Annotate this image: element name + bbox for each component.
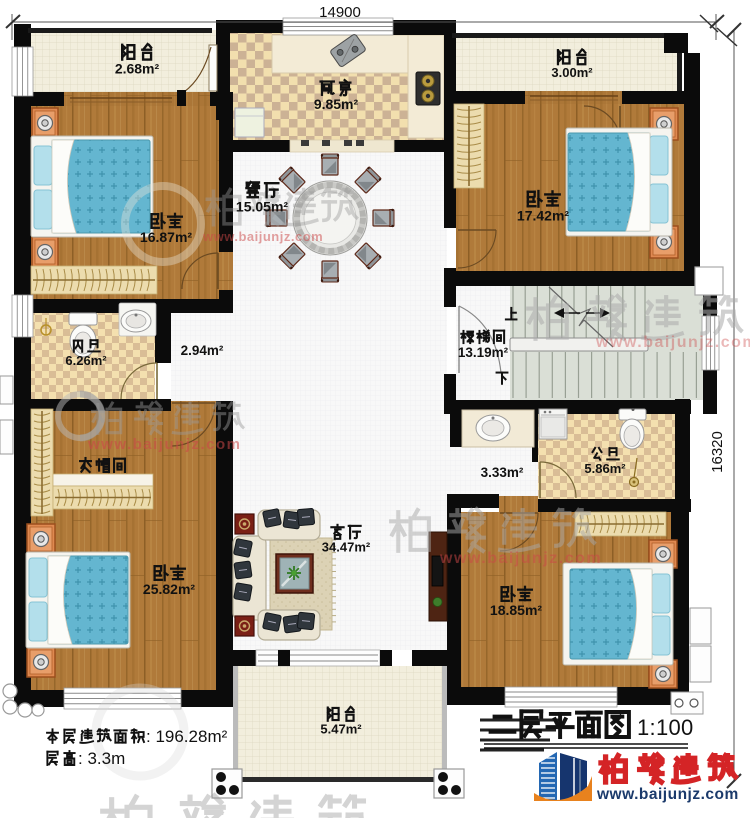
svg-text:3.33m²: 3.33m² [481,465,524,480]
svg-text:16320: 16320 [709,431,726,473]
svg-text:www.baijunjz.com: www.baijunjz.com [87,436,241,453]
svg-text:1:100: 1:100 [637,715,694,740]
svg-text:www.baijunjz.com: www.baijunjz.com [596,786,739,803]
svg-text:14900: 14900 [319,4,361,21]
svg-text:2.68m²: 2.68m² [115,61,160,77]
svg-text:3.00m²: 3.00m² [551,65,593,80]
svg-text:15.05m²: 15.05m² [236,199,288,215]
svg-text:18.85m²: 18.85m² [490,602,542,618]
svg-text:16.87m²: 16.87m² [140,229,192,245]
svg-text:: 196.28m²: : 196.28m² [146,727,228,746]
svg-text:5.86m²: 5.86m² [584,461,626,476]
svg-text:www.baijunjz.com: www.baijunjz.com [439,550,602,567]
svg-text:5.47m²: 5.47m² [320,722,362,737]
svg-text:2.94m²: 2.94m² [181,343,224,358]
svg-text:: 3.3m: : 3.3m [78,749,125,768]
svg-text:www.baijunjz.com: www.baijunjz.com [202,229,323,244]
svg-text:www.baijunjz.com: www.baijunjz.com [595,334,750,351]
svg-text:17.42m²: 17.42m² [517,208,569,224]
svg-text:9.85m²: 9.85m² [314,96,359,112]
svg-text:34.47m²: 34.47m² [322,540,371,555]
svg-text:13.19m²: 13.19m² [458,345,509,360]
svg-text:6.26m²: 6.26m² [65,353,107,368]
svg-text:25.82m²: 25.82m² [143,581,195,597]
